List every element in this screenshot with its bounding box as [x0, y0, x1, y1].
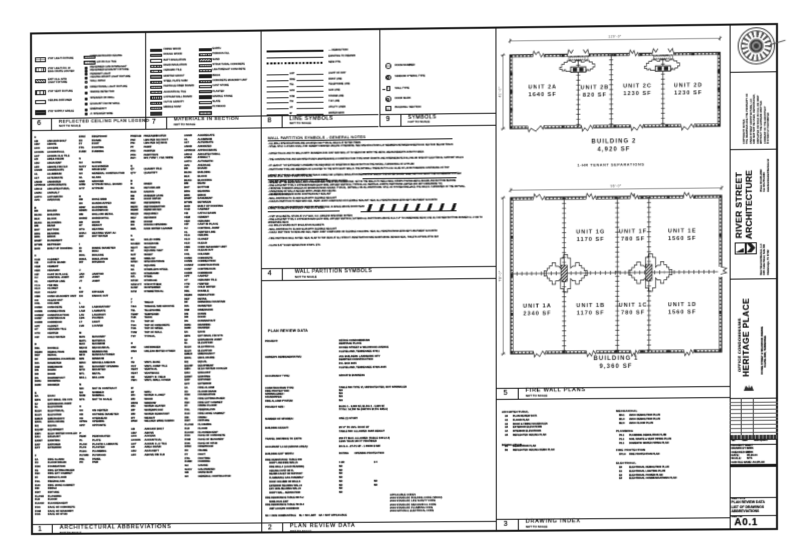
svg-text:9,360 SF: 9,360 SF — [599, 364, 632, 370]
svg-text:BUILDING 1: BUILDING 1 — [593, 356, 638, 362]
svg-text:1230 SF: 1230 SF — [623, 91, 651, 97]
svg-text:1640 SF: 1640 SF — [529, 92, 557, 98]
svg-text:78′-0″: 78′-0″ — [498, 270, 502, 281]
svg-text:1230 SF: 1230 SF — [674, 90, 702, 96]
svg-text:96′-0″: 96′-0″ — [610, 184, 621, 188]
svg-text:820 SF: 820 SF — [583, 92, 607, 98]
svg-text:1560 SF: 1560 SF — [668, 310, 696, 316]
svg-text:UNIT 2D: UNIT 2D — [674, 83, 703, 89]
svg-text:UNIT 1D: UNIT 1D — [668, 302, 697, 308]
svg-text:780 SF: 780 SF — [621, 310, 645, 316]
svg-text:UNIT 1G: UNIT 1G — [576, 229, 605, 235]
svg-text:41′-0″: 41′-0″ — [498, 86, 502, 97]
svg-text:UNIT 1E: UNIT 1E — [668, 228, 697, 234]
svg-text:UNIT 1B: UNIT 1B — [576, 303, 605, 309]
svg-text:UNIT 2C: UNIT 2C — [623, 83, 652, 89]
svg-text:1170 SF: 1170 SF — [577, 310, 605, 316]
svg-text:780 SF: 780 SF — [621, 236, 645, 242]
svg-text:120′-0″: 120′-0″ — [608, 34, 622, 38]
svg-text:1170 SF: 1170 SF — [577, 237, 605, 243]
svg-text:UNIT 2B: UNIT 2B — [580, 85, 609, 91]
svg-text:UNIT 2A: UNIT 2A — [528, 84, 557, 90]
svg-text:1560 SF: 1560 SF — [668, 236, 696, 242]
svg-text:4,920 SF: 4,920 SF — [597, 147, 630, 153]
svg-text:UNIT 1C: UNIT 1C — [619, 302, 648, 308]
svg-text:2340 SF: 2340 SF — [523, 311, 551, 317]
svg-text:UNIT 1F: UNIT 1F — [619, 229, 647, 235]
svg-text:UNIT 1A: UNIT 1A — [523, 303, 552, 309]
svg-text:1-HR TENANT SEPARATIONS: 1-HR TENANT SEPARATIONS — [577, 163, 644, 168]
svg-text:BUILDING 2: BUILDING 2 — [591, 139, 636, 146]
